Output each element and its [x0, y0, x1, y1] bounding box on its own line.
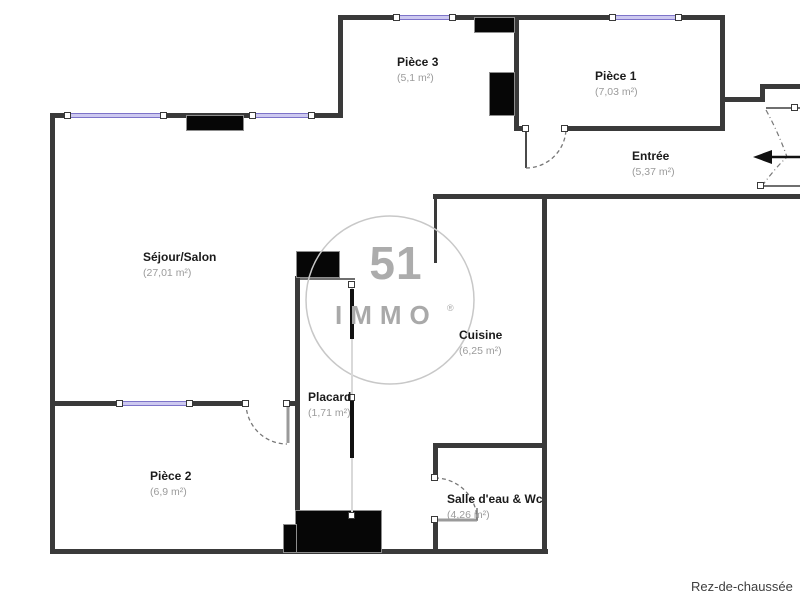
door-swing-arc [766, 110, 787, 157]
room-area: (4,26 m²) [447, 509, 543, 521]
watermark-name: IMMO [335, 302, 438, 328]
opening-handle [431, 516, 438, 523]
room-area: (1,71 m²) [308, 407, 351, 419]
room-name: Cuisine [459, 329, 502, 342]
floor-label: Rez-de-chaussée [691, 579, 793, 594]
room-area: (27,01 m²) [143, 267, 216, 279]
opening-handle [609, 14, 616, 21]
opening-handle [393, 14, 400, 21]
opening-handle [160, 112, 167, 119]
room-label-piece-3: Pièce 3 (5,1 m²) [397, 56, 438, 84]
room-name: Salle d'eau & Wc [447, 493, 543, 506]
opening-handle [431, 474, 438, 481]
room-area: (5,1 m²) [397, 72, 438, 84]
room-label-entree: Entrée (5,37 m²) [632, 150, 675, 178]
watermark-registered-mark: ® [447, 303, 454, 313]
opening-handle [283, 400, 290, 407]
room-name: Pièce 1 [595, 70, 638, 83]
opening-handle [249, 112, 256, 119]
opening-handle [675, 14, 682, 21]
room-label-piece-1: Pièce 1 (7,03 m²) [595, 70, 638, 98]
floor-plan: 51 IMMO ® Pièce 3 (5,1 m²) Pièce 1 (7,03… [0, 0, 800, 600]
opening-handle [186, 400, 193, 407]
watermark-number: 51 [368, 241, 424, 285]
opening-handle [308, 112, 315, 119]
entry-arrow-head [753, 150, 772, 164]
room-name: Placard [308, 391, 351, 404]
room-name: Pièce 2 [150, 470, 191, 483]
room-area: (6,9 m²) [150, 486, 191, 498]
door-swing-arc [246, 403, 287, 444]
room-label-salle-eau-wc: Salle d'eau & Wc (4,26 m²) [447, 493, 543, 521]
room-name: Séjour/Salon [143, 251, 216, 264]
room-area: (5,37 m²) [632, 166, 675, 178]
door-swing-arc [526, 128, 566, 168]
opening-handle [522, 125, 529, 132]
opening-handle [348, 281, 355, 288]
room-label-cuisine: Cuisine (6,25 m²) [459, 329, 502, 357]
opening-handle [561, 125, 568, 132]
opening-handle [64, 112, 71, 119]
opening-handle [116, 400, 123, 407]
opening-handle [757, 182, 764, 189]
opening-handle [348, 512, 355, 519]
room-name: Pièce 3 [397, 56, 438, 69]
opening-handle [242, 400, 249, 407]
opening-handle [449, 14, 456, 21]
room-area: (6,25 m²) [459, 345, 502, 357]
room-label-sejour-salon: Séjour/Salon (27,01 m²) [143, 251, 216, 279]
room-name: Entrée [632, 150, 675, 163]
opening-handle [791, 104, 798, 111]
room-area: (7,03 m²) [595, 86, 638, 98]
room-label-piece-2: Pièce 2 (6,9 m²) [150, 470, 191, 498]
room-label-placard: Placard (1,71 m²) [308, 391, 351, 419]
